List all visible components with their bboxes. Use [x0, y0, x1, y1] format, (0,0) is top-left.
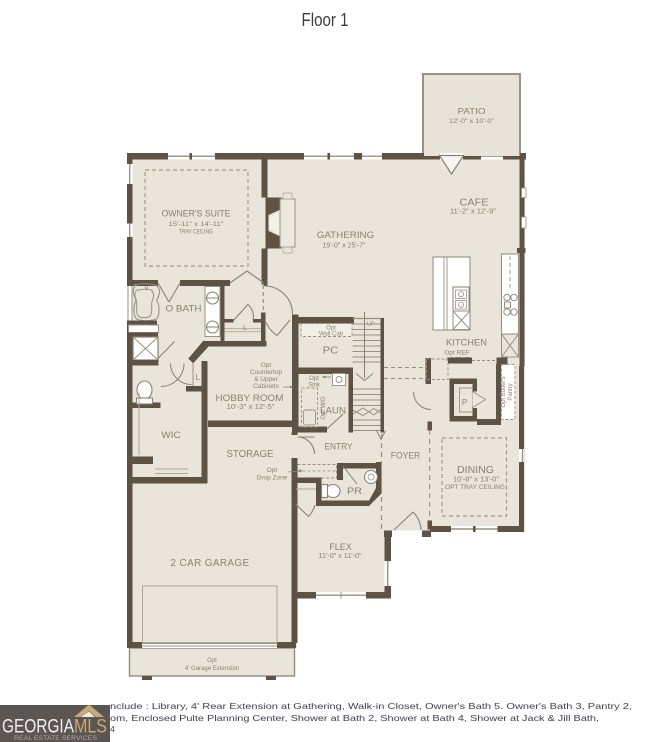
- svg-text:Drop Zone: Drop Zone: [257, 475, 288, 482]
- svg-text:UP: UP: [367, 322, 375, 328]
- svg-text:11'-0" x 11'-0": 11'-0" x 11'-0": [319, 553, 363, 560]
- svg-text:Cabinets: Cabinets: [253, 383, 279, 390]
- svg-text:PR: PR: [347, 486, 363, 496]
- svg-text:Pantry: Pantry: [508, 383, 514, 400]
- svg-text:FLEX: FLEX: [329, 542, 352, 553]
- svg-text:CAFE: CAFE: [460, 198, 489, 209]
- svg-text:4' Garage Extension: 4' Garage Extension: [185, 666, 239, 672]
- svg-text:LAUN: LAUN: [320, 406, 346, 417]
- svg-text:PC: PC: [323, 346, 339, 357]
- svg-text:L: L: [243, 323, 247, 332]
- svg-text:Opt: Opt: [267, 467, 278, 474]
- svg-text:HOBBY ROOM: HOBBY ROOM: [216, 393, 284, 404]
- svg-text:FOYER: FOYER: [391, 451, 421, 462]
- svg-text:19'-0" x 25'-7": 19'-0" x 25'-7": [323, 243, 367, 250]
- svg-text:Opt REF: Opt REF: [444, 350, 469, 357]
- svg-text:KITCHEN: KITCHEN: [446, 338, 487, 349]
- svg-text:Countertop: Countertop: [250, 369, 283, 376]
- svg-text:O BATH: O BATH: [166, 304, 202, 315]
- svg-text:10'-8" x 13'-0": 10'-8" x 13'-0": [453, 477, 500, 484]
- svg-text:Opt: Opt: [207, 658, 217, 664]
- svg-text:OWNER'S SUITE: OWNER'S SUITE: [162, 209, 231, 219]
- svg-text:L: L: [196, 373, 201, 382]
- svg-text:REAL ESTATE SERVICES: REAL ESTATE SERVICES: [14, 736, 97, 742]
- svg-text:15'-11" x 14'-11": 15'-11" x 14'-11": [169, 221, 225, 228]
- svg-text:om, Enclosed Pulte Planning Ce: om, Enclosed Pulte Planning Center, Show…: [110, 713, 599, 723]
- svg-text:GEORGIA: GEORGIA: [2, 716, 74, 738]
- svg-text:GATHERING: GATHERING: [317, 230, 375, 241]
- svg-text:PATIO: PATIO: [458, 106, 486, 116]
- svg-text:MLS: MLS: [74, 716, 107, 738]
- svg-text:nclude : Library, 4' Rear Exte: nclude : Library, 4' Rear Extension at G…: [110, 701, 632, 711]
- svg-text:STORAGE: STORAGE: [227, 448, 274, 460]
- svg-text:Wall Cab: Wall Cab: [319, 332, 344, 338]
- svg-text:Opt: Opt: [309, 376, 319, 382]
- svg-text:12'-0" x 10'-0": 12'-0" x 10'-0": [449, 118, 495, 125]
- svg-text:4: 4: [110, 724, 115, 734]
- svg-text:WIC: WIC: [161, 430, 181, 441]
- svg-text:& Upper: & Upper: [254, 376, 279, 383]
- svg-text:10'-3" x 12'-5": 10'-3" x 12'-5": [227, 404, 276, 411]
- svg-text:DINING: DINING: [457, 464, 494, 476]
- svg-text:TRAY CEILING: TRAY CEILING: [179, 230, 213, 236]
- svg-text:OPT TRAY CEILING: OPT TRAY CEILING: [445, 484, 505, 491]
- svg-text:P: P: [462, 398, 467, 407]
- svg-text:11'-2" x 12'-9": 11'-2" x 12'-9": [450, 209, 497, 216]
- svg-text:Opt: Opt: [261, 362, 272, 369]
- svg-text:Opt Butler's: Opt Butler's: [501, 376, 507, 407]
- svg-text:ENTRY: ENTRY: [325, 442, 354, 453]
- svg-text:2 CAR GARAGE: 2 CAR GARAGE: [171, 557, 250, 569]
- svg-text:Floor 1: Floor 1: [302, 10, 349, 30]
